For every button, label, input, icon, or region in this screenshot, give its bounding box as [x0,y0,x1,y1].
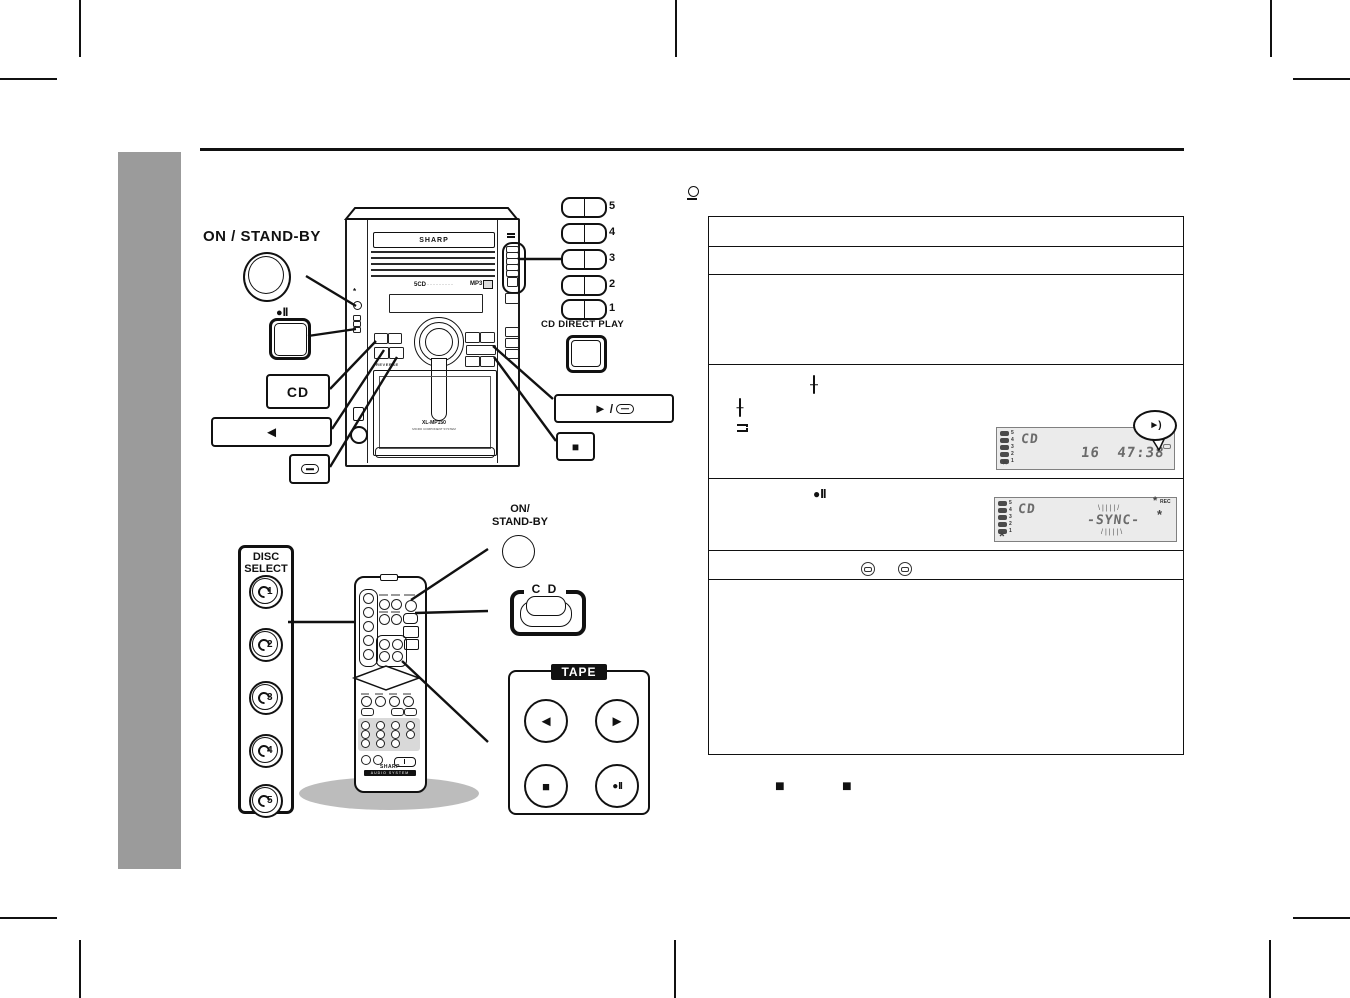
crop-mark [79,0,81,57]
keypad-button [376,730,385,739]
crop-mark [675,0,677,57]
stop-icon: ■ [775,779,785,795]
power-icon [353,301,362,310]
lcd-source-label: CD [1020,432,1039,447]
flash-icon: * [1002,456,1008,473]
phones-jack [350,426,368,444]
rewind-callout-button: ◄ [211,417,332,447]
remote-disc-button [363,621,374,632]
unit-button [505,338,519,348]
remote-tape-button [392,639,403,650]
remote-button [361,755,371,765]
remote-button [403,696,414,707]
disc-icon-tray [687,198,697,200]
cassette-window [379,376,491,449]
unit-button [374,347,389,359]
remote-button [391,599,402,610]
unit-button [505,293,519,304]
menu-icon [507,233,515,235]
unit-right-panel-line [497,220,498,463]
remote-disc-button [363,635,374,646]
disc-icon [688,186,699,197]
cd-direct-play-button [566,335,607,373]
deck-model-label: XL-MP150 [374,420,494,426]
lcd-time-value: 16 47:38 [1080,445,1165,461]
keypad-button [376,721,385,730]
pause-bars-icon: II [283,305,288,319]
disc-skip-icon [898,562,912,576]
mp3-logo: MP3 [470,281,482,287]
instruction-table [708,216,1184,755]
lcd-disc-number: 3 [1011,445,1014,450]
disc-select-button-5: 5 [249,784,283,818]
cassette-door: XL-MP150 MICRO COMPONENT SYSTEM [373,370,497,456]
reverse-label: REVERSE [376,362,399,367]
remote-tape-button [392,651,403,662]
lcd-disc-number: 2 [1009,522,1012,527]
disc-select-number: 5 [267,795,273,806]
unit-button [480,356,495,367]
on-standby-main-label: ON / STAND-BY [203,228,321,245]
disc-select-button-3: 3 [249,681,283,715]
play-repeat-bubble-icon: ►) [1149,420,1160,431]
lcd-display-sync: 5 4 3 2 1 * CD \||||/ -SYNC- /||||\ * RE… [994,497,1177,542]
direct-button-4-label: 4 [609,226,615,238]
disc-select-panel: DISC SELECT 1 2 3 4 5 [238,545,294,814]
cd-direct-play-label: CD DIRECT PLAY [541,319,624,330]
remote-button [391,614,402,625]
unit-button [505,349,519,359]
cd-oval-button-top [526,596,566,616]
remote-button [361,696,372,707]
lcd-disc-number: 5 [1011,431,1014,436]
lcd-disc-number: 1 [1011,459,1014,464]
remote-cd-button [403,613,418,624]
rewind-icon: ◄ [539,713,554,730]
remote-button [391,708,404,716]
unit-play-button [466,345,496,355]
table-row-2 [709,247,1183,276]
rec-pause-symbol: ●II [813,486,825,501]
crop-mark [674,940,676,998]
remote-disc-button [363,607,374,618]
play-icon: ► [610,713,625,730]
crop-mark [0,78,57,80]
direct-button-5 [561,197,607,218]
repeat-all-icon [739,398,741,417]
remote-button [404,708,417,716]
bottom-slot [375,447,495,458]
vent-line [371,275,495,277]
cd-remote-label: C D [528,582,562,596]
direct-button-3 [561,249,607,270]
disc-select-title: DISC SELECT [241,551,291,575]
direct-button-2 [561,275,607,296]
disc-select-number: 4 [267,745,273,756]
crop-mark [1270,0,1272,57]
keypad-button [391,739,400,748]
on-standby-knob-inner [248,256,284,294]
disc-select-button-4: 4 [249,734,283,768]
flash-icon: * [1153,495,1157,507]
remote-button [361,708,374,716]
crop-mark [79,940,81,998]
pause-bars-icon: II [618,781,622,792]
direct-button-2-label: 2 [609,278,615,290]
main-unit-illustration: SHARP 5CD ········· MP3 REVERSE [345,218,520,467]
lcd-disc-number: 2 [1011,452,1014,457]
repeat-icon [301,464,319,474]
direct-button-1-label: 1 [609,302,615,314]
lcd-disc-number: 1 [1009,529,1012,534]
direct-button-3-label: 3 [609,252,615,264]
deck-sub-label: MICRO COMPONENT SYSTEM [374,427,494,431]
crop-mark [1293,78,1350,80]
unit-model-dots: ········· [427,282,454,288]
table-row-6 [709,551,1183,581]
unit-display-window [389,294,483,313]
stop-icon: ■ [572,440,579,454]
remote-disc-button [363,649,374,660]
remote-menu-button [381,672,396,681]
jog-dial-inner [425,328,453,356]
play-icon: ► [594,401,607,416]
menu-icon [507,236,515,238]
rec-indicator-label: REC [1160,499,1171,505]
cd-remote-callout: C D [508,584,586,634]
remote-system-bar: AUDIO SYSTEM [364,770,416,776]
keypad-button [391,730,400,739]
crop-mark [0,917,57,919]
vent-line [371,263,495,265]
crop-mark [1293,917,1350,919]
unit-left-panel-line [367,220,368,463]
disc-select-number: 2 [267,639,273,650]
phones-jack-hole [355,431,359,435]
remote-emitter [380,574,398,581]
cd-direct-play-button-inner [571,340,601,367]
remote-system-label: AUDIO SYSTEM [371,771,409,775]
direct-button-5-label: 5 [609,200,615,212]
remote-tape-button [379,639,390,650]
remote-tape-button [379,651,390,662]
rec-pause-button-inner [274,323,307,356]
lcd-disc-number: 5 [1009,501,1012,506]
slash: / [610,402,613,416]
tape-label-badge: TAPE [551,664,607,680]
sync-rays-top: \||||/ [1098,505,1121,512]
cd-callout-button: CD [266,374,330,409]
sync-rays-bottom: /||||\ [1101,529,1124,536]
crop-mark [1269,940,1271,998]
table-row-3 [709,275,1183,365]
tape-clip-icon [353,407,364,421]
tape-label: TAPE [561,665,596,679]
on-standby-remote-button [502,535,535,568]
cd-callout-label: CD [287,384,309,400]
eject-icon: * [353,287,356,296]
remote-on-standby-button [405,600,417,612]
remote-button [389,696,400,707]
tape-rec-pause-button: ●II [595,764,639,808]
unit-button [465,356,480,367]
disc-skip-icon [861,562,875,576]
lcd-disc-number: 3 [1009,515,1012,520]
remote-button [375,696,386,707]
table-row-7 [709,580,1183,751]
lcd-disc-number: 4 [1009,508,1012,513]
remote-button [379,599,390,610]
keypad-button [361,730,370,739]
stop-callout-button: ■ [556,432,595,461]
tape-play-button: ► [595,699,639,743]
disc-direct-mini [506,270,519,277]
unit-button [465,332,480,343]
vent-line [371,257,495,259]
vent-line [371,251,495,253]
sidebar-tab [118,152,181,869]
rec-pause-label: ●II [276,305,287,319]
rec-pause-mini [353,327,361,333]
direct-button-4 [561,223,607,244]
unit-button [389,347,404,359]
keypad-button [406,730,415,739]
lcd-disc-number: 4 [1011,438,1014,443]
tape-callout-box: TAPE ◄ ► ■ ●II [508,670,650,815]
cd-tray-slot: SHARP [373,232,495,248]
manual-page: SHARP 5CD ········· MP3 REVERSE [0,0,1350,998]
remote-disc-button [363,593,374,604]
flash-icon: * [999,528,1005,545]
table-row-1 [709,217,1183,247]
flash-icon: * [1157,507,1162,522]
unit-model-label: 5CD [414,282,426,288]
tape-rewind-button: ◄ [524,699,568,743]
unit-button [505,327,519,337]
keypad-button [361,721,370,730]
disc-select-number: 3 [267,692,273,703]
stop-icon: ■ [842,779,852,795]
keypad-button [376,739,385,748]
repeat-indicator [1163,444,1171,449]
repeat-callout-button [289,454,330,484]
repeat-one-icon [737,423,748,433]
disc-select-button-1: 1 [249,575,283,609]
callout-bubble: ►) [1133,410,1177,441]
rewind-icon: ◄ [264,424,279,441]
header-rule [200,148,1184,151]
play-repeat-callout-button: ► / [554,394,674,423]
keypad-button [361,739,370,748]
unit-button [388,333,402,344]
disc-select-number: 1 [267,586,273,597]
lcd-sync-label: -SYNC- [1086,513,1141,528]
remote-button [379,614,390,625]
vent-line [371,269,495,271]
stop-icon: ■ [542,779,550,794]
direct-button-1 [561,299,607,320]
keypad-button [391,721,400,730]
lcd-source-label: CD [1017,502,1036,517]
on-standby-remote-label: ON/ STAND-BY [470,503,570,529]
keypad-button [406,721,415,730]
unit-button [374,333,388,344]
rec-pause-button [269,318,311,360]
disc-select-button-2: 2 [249,628,283,662]
disc-direct-mini [507,277,518,287]
pause-bars-icon: II [820,486,825,501]
remote-control-illustration: SHARP AUDIO SYSTEM [354,576,427,793]
unit-button [480,332,495,343]
disc-direct-group-ring [502,242,526,294]
unit-brand-label: SHARP [419,237,449,244]
tape-stop-button: ■ [524,764,568,808]
repeat-icon [616,404,634,414]
mp3-badge [483,280,493,289]
repeat-icon [813,375,815,394]
